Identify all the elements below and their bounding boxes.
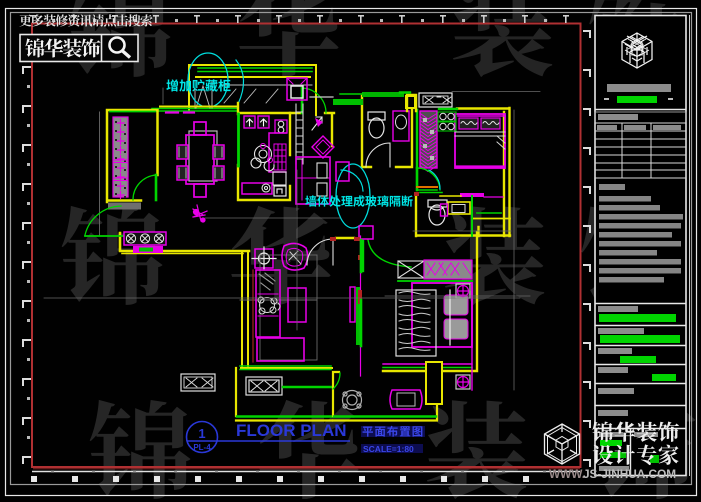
svg-text:JS-JINHUA.COM: JS-JINHUA.COM	[583, 467, 676, 481]
svg-text:FLOOR PLAN: FLOOR PLAN	[236, 421, 347, 440]
svg-text:SCALE=1:80: SCALE=1:80	[363, 444, 414, 454]
svg-text:1: 1	[198, 426, 205, 441]
svg-text:PL-4: PL-4	[193, 443, 211, 452]
svg-text:WWW.: WWW.	[549, 467, 585, 481]
